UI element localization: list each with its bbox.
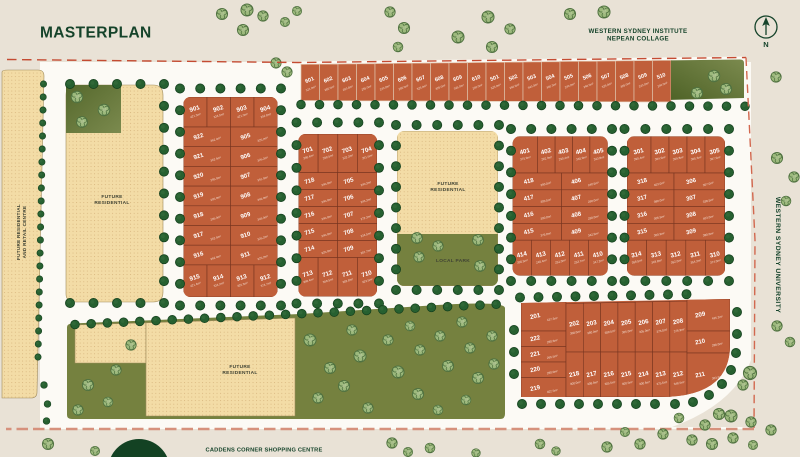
svg-text:RESIDENTIAL: RESIDENTIAL [430, 187, 465, 193]
svg-text:LOCAL PARK: LOCAL PARK [436, 258, 470, 264]
svg-text:N: N [763, 40, 768, 49]
svg-text:FUTURE: FUTURE [101, 194, 123, 200]
svg-text:RESIDENTIAL: RESIDENTIAL [222, 370, 257, 376]
svg-text:RESIDENTIAL: RESIDENTIAL [94, 200, 129, 206]
svg-text:NEPEAN COLLAGE: NEPEAN COLLAGE [607, 36, 669, 43]
svg-text:MASTERPLAN: MASTERPLAN [40, 25, 152, 42]
svg-text:FUTURE: FUTURE [229, 364, 251, 370]
svg-text:FUTURE RESIDENTIAL: FUTURE RESIDENTIAL [16, 204, 21, 260]
svg-text:CADDENS CORNER SHOPPING CENTRE: CADDENS CORNER SHOPPING CENTRE [206, 448, 323, 454]
svg-text:FUTURE: FUTURE [437, 181, 459, 187]
svg-text:WESTERN SYDNEY UNIVERSITY: WESTERN SYDNEY UNIVERSITY [774, 197, 781, 313]
svg-text:WESTERN SYDNEY INSTITUTE: WESTERN SYDNEY INSTITUTE [589, 28, 688, 35]
svg-text:AND RETAIL CENTRE: AND RETAIL CENTRE [22, 206, 27, 259]
